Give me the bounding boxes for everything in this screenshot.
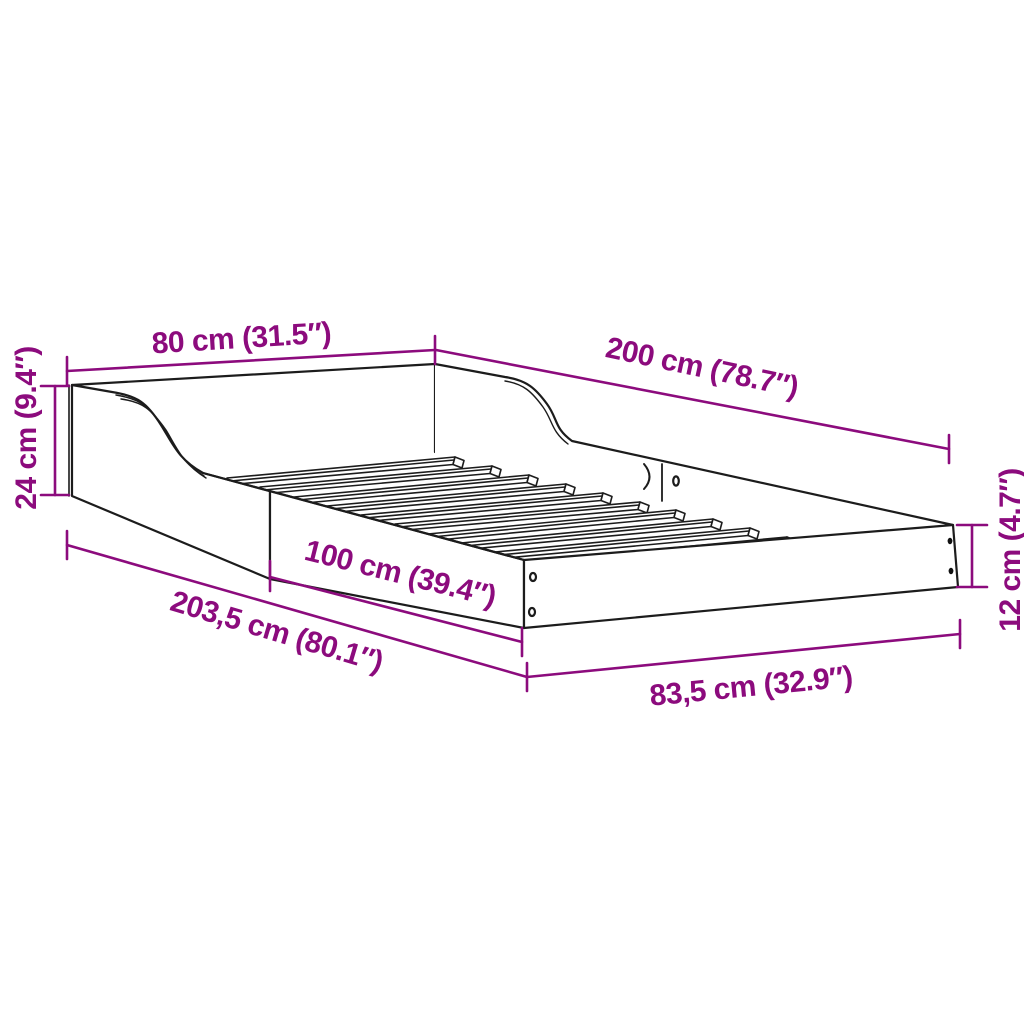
bed-frame-drawing: [69, 364, 958, 628]
dim-total-width: [527, 620, 960, 677]
dim-label-side-rail-height: 12 cm (4.7″): [994, 468, 1024, 631]
screw-icon: [948, 538, 953, 544]
dim-label-total-width: 83,5 cm (32.9″): [648, 660, 854, 712]
screw-icon: [949, 568, 954, 574]
dim-headboard-height: [41, 386, 69, 495]
bed-frame-dimension-diagram: 80 cm (31.5″) 200 cm (78.7″) 24 cm (9.4″…: [0, 0, 1024, 1024]
diagram-canvas: 80 cm (31.5″) 200 cm (78.7″) 24 cm (9.4″…: [0, 0, 1024, 1024]
screw-icon: [530, 573, 536, 581]
screw-icon: [529, 608, 535, 616]
dim-label-headboard-width: 80 cm (31.5″): [151, 317, 332, 361]
dim-label-bed-length: 200 cm (78.7″): [603, 331, 801, 404]
dim-label-headboard-height: 24 cm (9.4″): [10, 346, 43, 509]
dim-side-rail-height: [957, 525, 987, 587]
